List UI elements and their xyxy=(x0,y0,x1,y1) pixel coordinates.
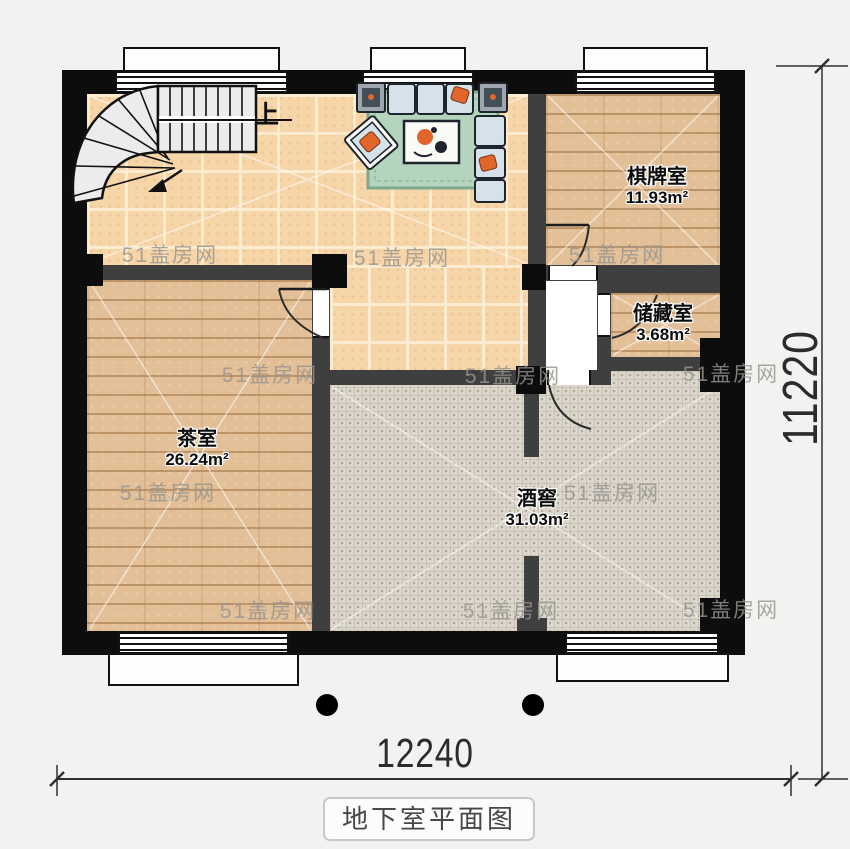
room-name: 储藏室 xyxy=(578,303,748,325)
sofa-set xyxy=(344,83,507,202)
room-area: 31.03m² xyxy=(452,510,622,530)
room-label-chess: 棋牌室 11.93m² xyxy=(572,166,742,208)
side-table-right xyxy=(479,83,507,112)
plan-title-box: 地下室平面图 xyxy=(323,797,535,841)
watermark: 51盖房网 xyxy=(532,477,692,507)
watermark: 51盖房网 xyxy=(433,360,593,390)
plan-title: 地下室平面图 xyxy=(342,804,516,834)
marker-dot-right xyxy=(522,694,544,716)
marker-dot-left xyxy=(316,694,338,716)
watermark: 51盖房网 xyxy=(90,239,250,269)
watermark: 51盖房网 xyxy=(88,477,248,507)
watermark: 51盖房网 xyxy=(651,594,811,624)
floor-plan-page: 上 棋牌室 11.93m² 储藏室 3.68m² 茶室 26.24m² 酒窖 3… xyxy=(0,0,850,849)
side-table-left xyxy=(357,83,385,112)
room-label-storage: 储藏室 3.68m² xyxy=(578,303,748,345)
room-area: 11.93m² xyxy=(572,188,742,208)
coffee-table xyxy=(404,121,459,163)
door-arc-tea-room xyxy=(279,289,327,339)
watermark: 51盖房网 xyxy=(431,595,591,625)
room-label-tea: 茶室 26.24m² xyxy=(112,428,282,470)
dimension-right-value: 11220 xyxy=(774,300,827,476)
room-area: 3.68m² xyxy=(578,325,748,345)
watermark: 51盖房网 xyxy=(190,359,350,389)
watermark: 51盖房网 xyxy=(322,242,482,272)
door-arc-cellar xyxy=(549,385,591,429)
watermark: 51盖房网 xyxy=(537,239,697,269)
room-name: 茶室 xyxy=(112,428,282,450)
sofa-top-row xyxy=(388,84,473,114)
sofa-right-column xyxy=(475,116,505,202)
dimension-bottom-value: 12240 xyxy=(355,730,494,777)
plan-overlay-graphics xyxy=(0,0,850,849)
room-area: 26.24m² xyxy=(112,450,282,470)
watermark: 51盖房网 xyxy=(188,595,348,625)
room-name: 棋牌室 xyxy=(572,166,742,188)
stair-direction-label: 上 xyxy=(254,95,279,131)
